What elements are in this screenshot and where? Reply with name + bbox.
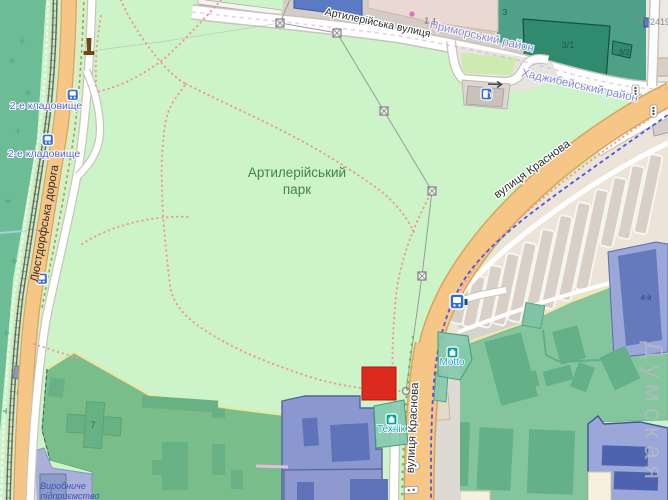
svg-text:3/1: 3/1 bbox=[562, 40, 575, 50]
svg-text:Думская: Думская bbox=[639, 341, 668, 485]
svg-text:2-е кладовище: 2-е кладовище bbox=[8, 148, 81, 160]
svg-text:Motto: Motto bbox=[439, 357, 464, 368]
svg-text:3: 3 bbox=[503, 7, 508, 17]
svg-text:2-е кладовище: 2-е кладовище bbox=[10, 100, 83, 112]
svg-text:Технік: Технік bbox=[377, 424, 406, 435]
svg-text:підприємство: підприємство bbox=[41, 491, 100, 500]
svg-text:Артилерійський: Артилерійський bbox=[248, 165, 346, 180]
svg-text:3/2: 3/2 bbox=[618, 47, 630, 57]
svg-text:ТП-2419: ТП-2419 bbox=[635, 17, 668, 27]
svg-text:7: 7 bbox=[90, 420, 95, 431]
svg-text:1 1: 1 1 bbox=[424, 15, 438, 27]
svg-text:парк: парк bbox=[283, 182, 311, 197]
svg-text:Виробниче: Виробниче bbox=[40, 481, 86, 491]
svg-text:4-й: 4-й bbox=[641, 293, 652, 302]
